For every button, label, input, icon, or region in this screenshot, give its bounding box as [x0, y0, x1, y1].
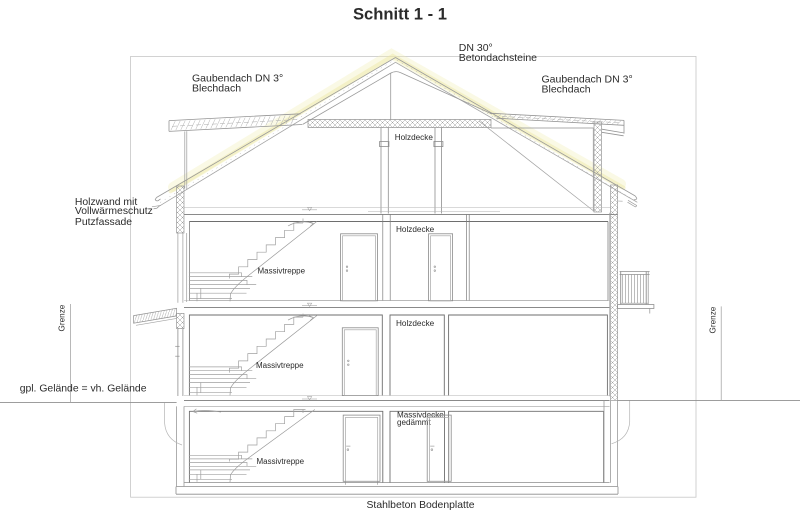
svg-text:Schnitt 1 - 1: Schnitt 1 - 1 — [353, 5, 447, 24]
svg-text:Blechdach: Blechdach — [192, 83, 241, 95]
svg-text:Stahlbeton Bodenplatte: Stahlbeton Bodenplatte — [367, 500, 475, 511]
svg-text:Grenze: Grenze — [58, 304, 67, 331]
svg-text:Holzdecke: Holzdecke — [395, 133, 434, 142]
svg-text:Grenze: Grenze — [709, 306, 718, 333]
svg-text:Holzdecke: Holzdecke — [396, 319, 435, 328]
svg-text:Betondachsteine: Betondachsteine — [459, 52, 537, 64]
svg-text:Holzdecke: Holzdecke — [396, 225, 435, 234]
svg-text:Massivtreppe: Massivtreppe — [257, 457, 305, 466]
svg-text:gpl. Gelände = vh. Gelände: gpl. Gelände = vh. Gelände — [20, 383, 147, 394]
svg-text:Putzfassade: Putzfassade — [75, 217, 132, 228]
svg-text:Blechdach: Blechdach — [542, 84, 591, 96]
svg-text:Massivtreppe: Massivtreppe — [258, 267, 306, 276]
svg-text:gedämmt: gedämmt — [397, 418, 431, 427]
svg-text:Vollwärmeschutz: Vollwärmeschutz — [75, 206, 153, 217]
svg-text:Massivtreppe: Massivtreppe — [256, 361, 304, 370]
